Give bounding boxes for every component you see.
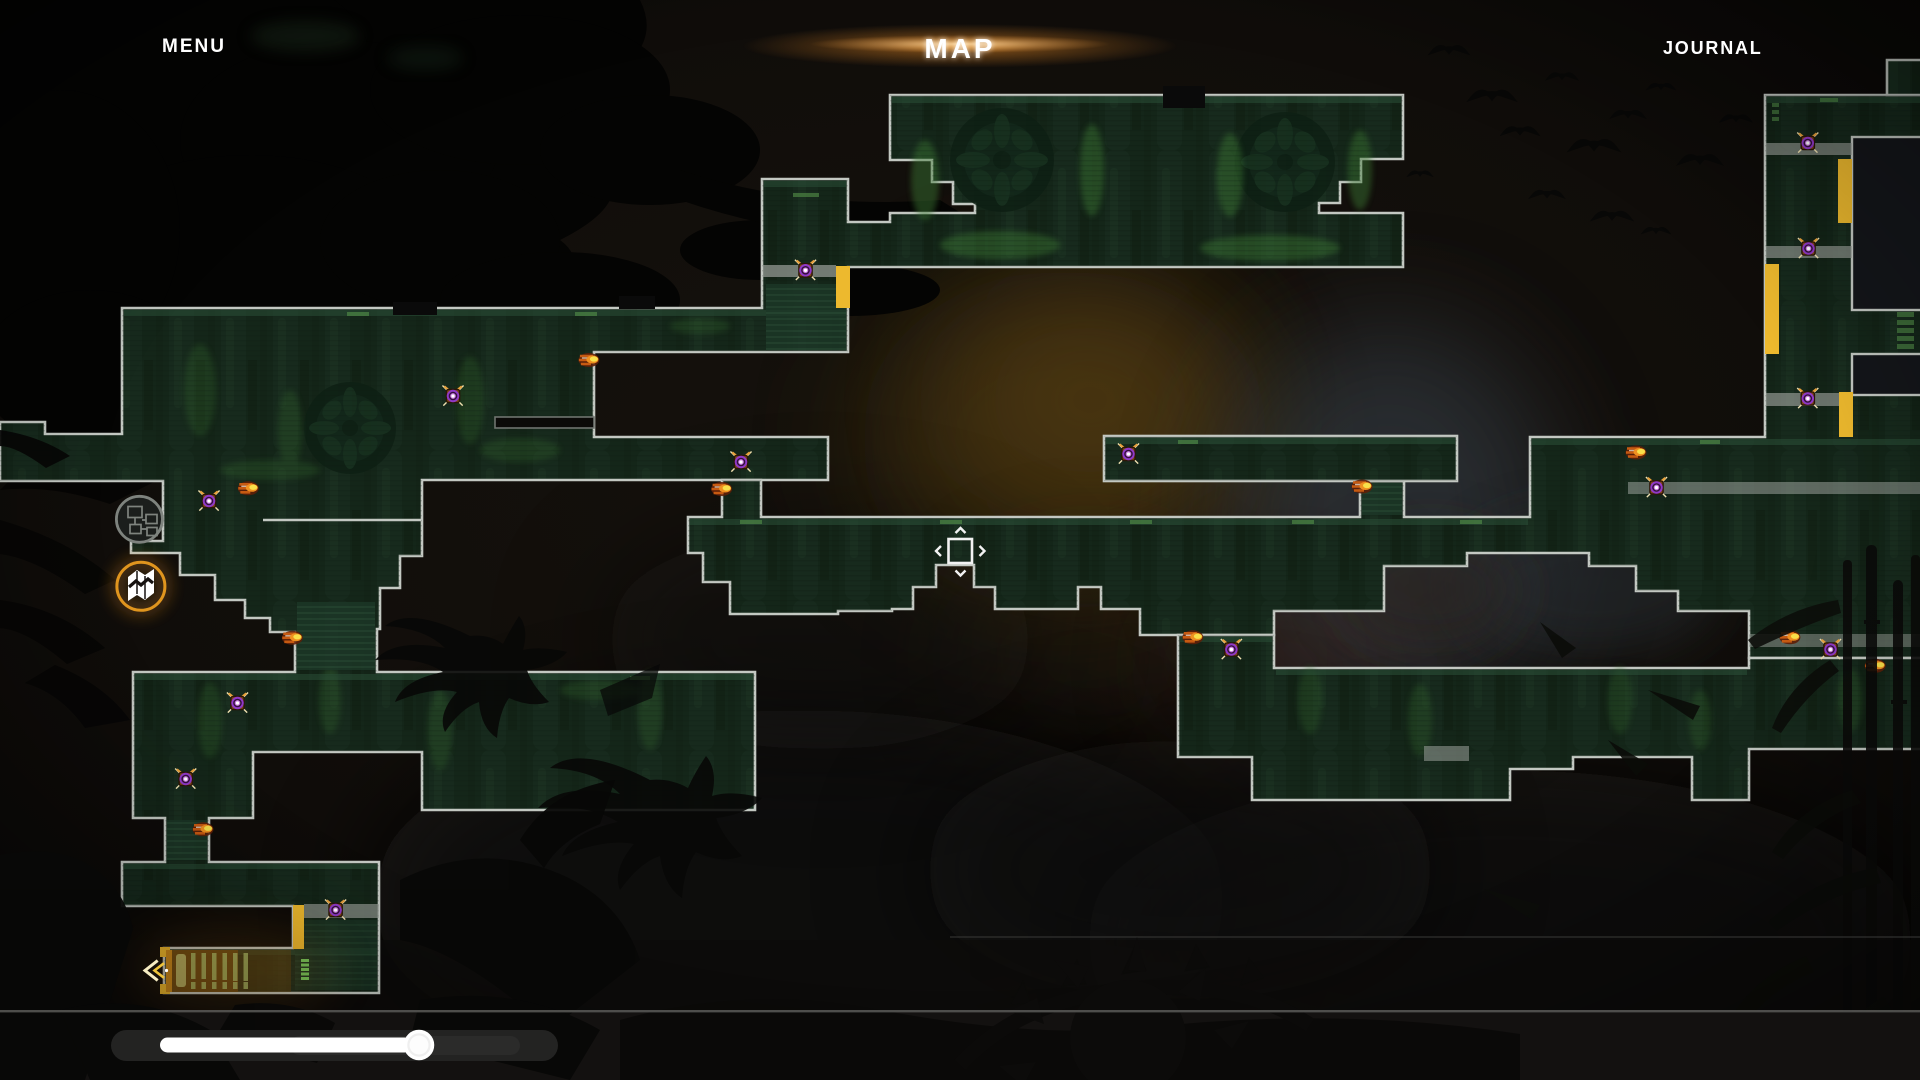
- svg-text:MAP: MAP: [924, 33, 995, 64]
- svg-text:JOURNAL: JOURNAL: [1663, 38, 1763, 58]
- svg-text:MENU: MENU: [162, 36, 226, 57]
